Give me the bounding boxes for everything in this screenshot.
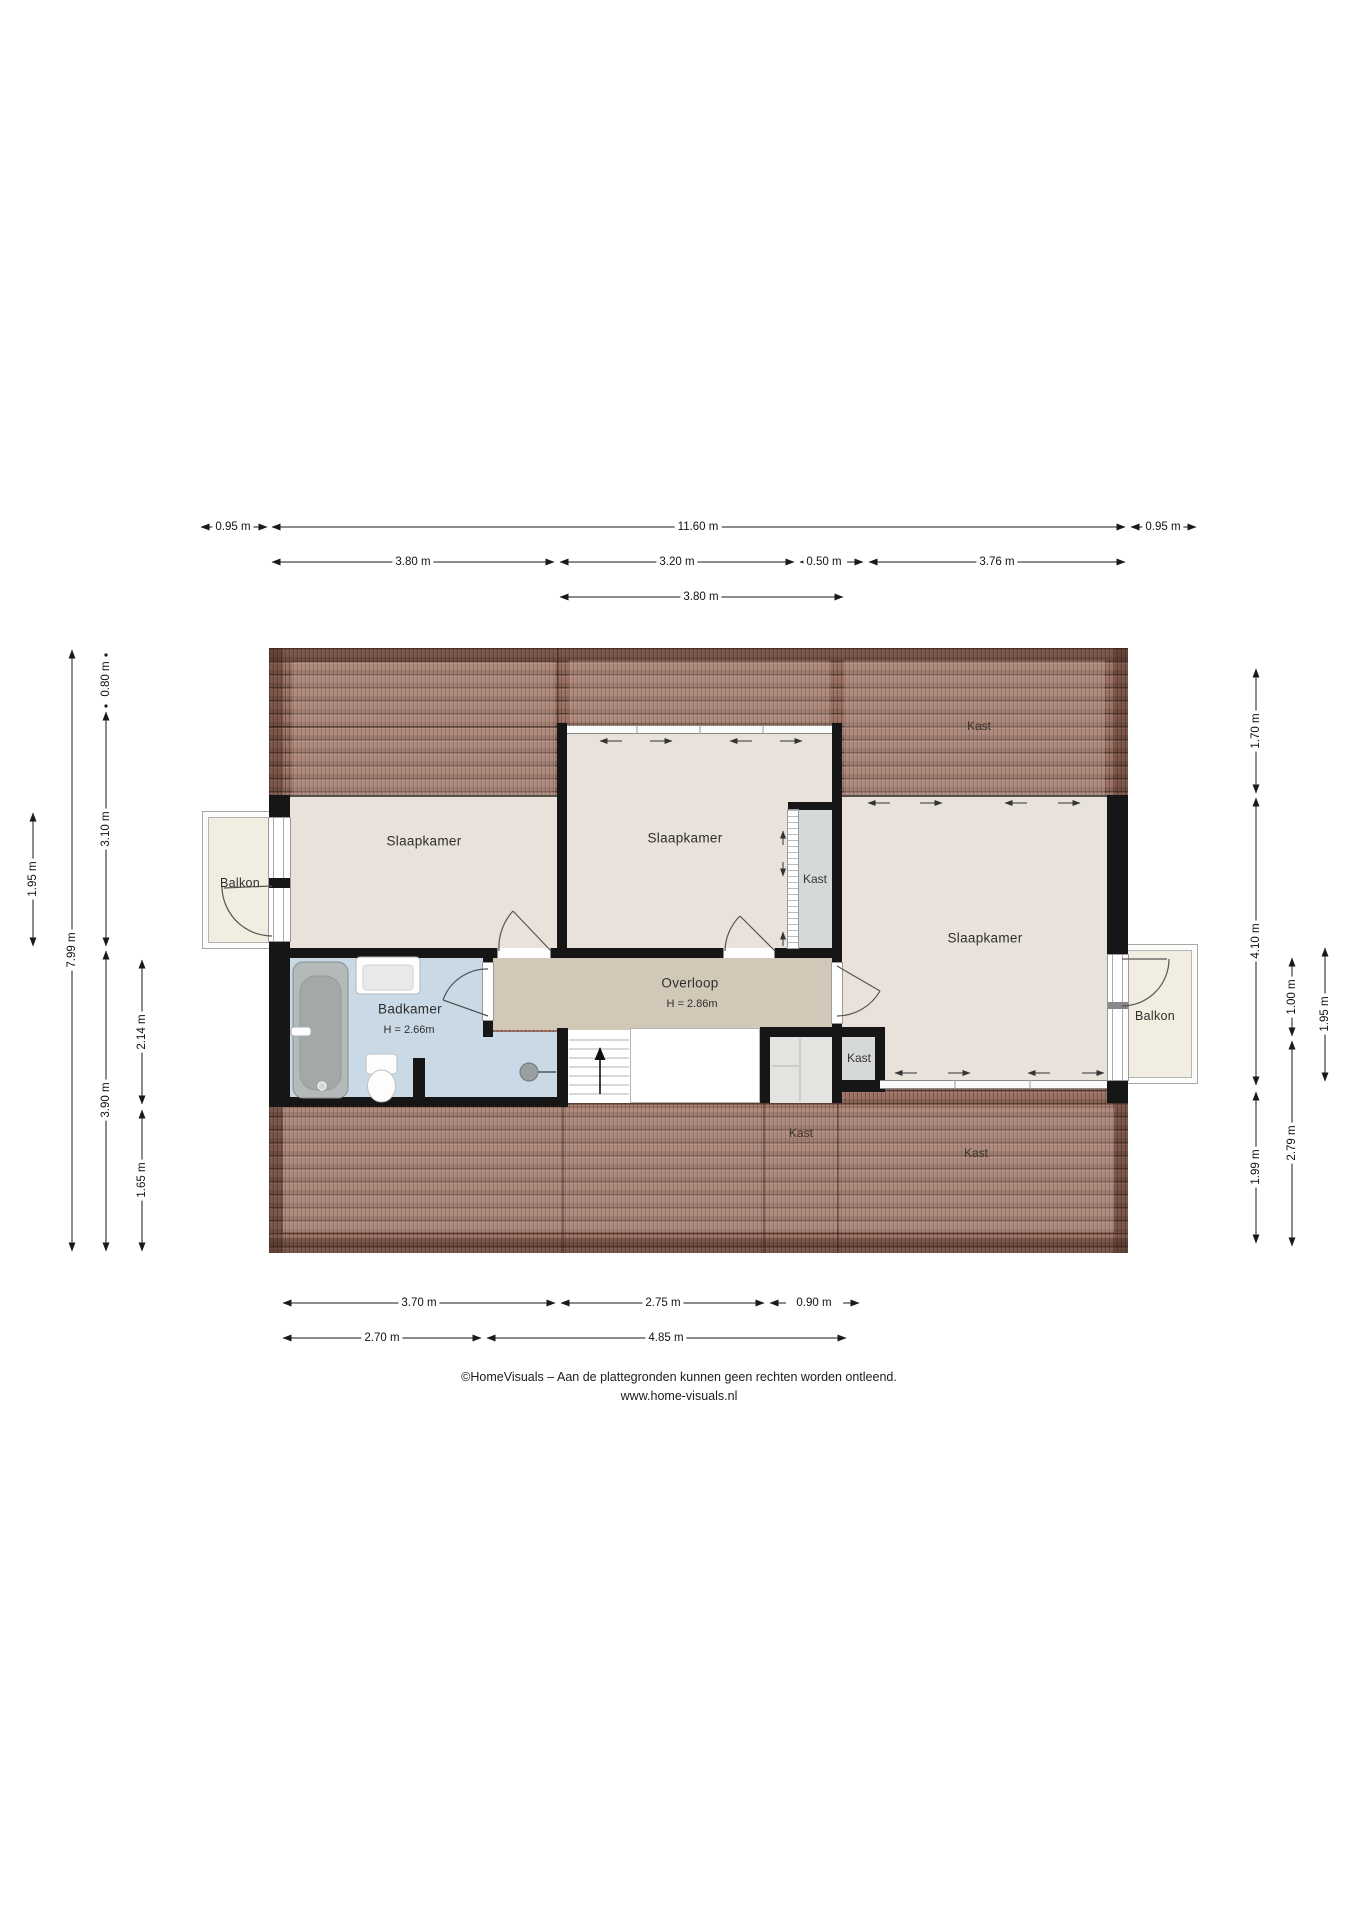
room-label-bedroom-middle: Slaapkamer [647, 831, 722, 846]
dim-right-195: 1.95 m [1319, 993, 1331, 1034]
dim-top-095-left: 0.95 m [212, 521, 253, 533]
dim-left-214: 2.14 m [136, 1011, 148, 1052]
room-label-balcony-left: Balkon [220, 876, 260, 890]
wall [269, 958, 290, 1107]
dim-right-279: 2.79 m [1286, 1122, 1298, 1163]
dim-top-380-left: 3.80 m [392, 556, 433, 568]
door-opening-bedroom-middle [723, 948, 775, 958]
door-opening-bedroom-right [832, 963, 842, 1023]
dim-top-095-right: 0.95 m [1142, 521, 1183, 533]
roof-seam [269, 726, 557, 728]
wall [760, 1027, 885, 1037]
attic-area-bottom [283, 1108, 1114, 1232]
dim-bottom-090: 0.90 m [793, 1297, 834, 1309]
roof-seam [562, 1103, 564, 1253]
attic-area-top-middle [569, 660, 830, 723]
wall [551, 948, 723, 958]
dim-left-080: 0.80 m [100, 658, 112, 699]
room-label-closet-attic-bottom-middle: Kast [789, 1126, 813, 1140]
bedroom-left-floor [290, 795, 557, 948]
dim-right-410: 4.10 m [1250, 920, 1262, 961]
room-label-closet-bedroom: Kast [803, 872, 827, 886]
landing-floor [493, 958, 832, 1030]
dim-left-310: 3.10 m [100, 808, 112, 849]
balcony-right-door-frame [1108, 955, 1128, 1080]
room-label-bathroom: Badkamer [378, 1002, 442, 1017]
wall [832, 723, 842, 963]
dim-bottom-270: 2.70 m [361, 1332, 402, 1344]
frame-tick [1108, 1002, 1128, 1009]
ceiling-height-bathroom: H = 2.66m [383, 1024, 434, 1036]
stairwell-void [630, 1028, 760, 1103]
dim-right-170: 1.70 m [1250, 710, 1262, 751]
ceiling-height-landing: H = 2.86m [666, 998, 717, 1010]
dim-bottom-275: 2.75 m [642, 1297, 683, 1309]
roof-edge-top [269, 648, 1128, 661]
wall [483, 948, 493, 963]
floor-plan-page: Slaapkamer Slaapkamer Slaapkamer Badkame… [0, 0, 1358, 1920]
wall [290, 1097, 568, 1107]
wall [1107, 795, 1128, 955]
dim-left-165: 1.65 m [136, 1159, 148, 1200]
wall [269, 941, 290, 958]
room-label-balcony-right: Balkon [1135, 1009, 1175, 1023]
attic-area-top-left [292, 662, 555, 795]
room-label-bedroom-right: Slaapkamer [947, 931, 1022, 946]
wall [483, 1020, 493, 1037]
dormer-window-band [567, 725, 832, 734]
dim-top-1160: 11.60 m [675, 521, 722, 533]
dim-top-380-mid: 3.80 m [680, 591, 721, 603]
staircase [568, 1030, 630, 1103]
wall [875, 1037, 885, 1080]
dim-bottom-370: 3.70 m [398, 1297, 439, 1309]
wall [1107, 1080, 1128, 1103]
roof-seam [837, 1103, 839, 1253]
dim-left-799: 7.99 m [66, 929, 78, 970]
wall [788, 802, 842, 810]
room-label-landing: Overloop [661, 976, 718, 991]
room-label-closet-landing: Kast [847, 1051, 871, 1065]
bedroom-right-window-band [880, 1080, 1107, 1089]
wall [269, 795, 290, 818]
door-opening-bathroom [483, 963, 493, 1020]
door-hinge-block [269, 878, 290, 888]
room-label-closet-attic-top-right: Kast [967, 719, 991, 733]
room-label-closet-attic-bottom-right: Kast [964, 1146, 988, 1160]
wall [760, 1028, 770, 1103]
dim-right-100: 1.00 m [1286, 976, 1298, 1017]
wall [842, 1080, 885, 1092]
room-label-bedroom-left: Slaapkamer [386, 834, 461, 849]
dim-top-320: 3.20 m [656, 556, 697, 568]
footer-copyright: ©HomeVisuals – Aan de plattegronden kunn… [461, 1370, 897, 1384]
dim-bottom-485: 4.85 m [645, 1332, 686, 1344]
dim-top-376: 3.76 m [976, 556, 1017, 568]
wall [557, 1028, 568, 1107]
wall [290, 948, 497, 958]
dim-top-050: 0.50 m [803, 556, 844, 568]
roof-edge-bottom [269, 1238, 1128, 1253]
closet-sliding-door [788, 810, 798, 948]
dim-left-390: 3.90 m [100, 1079, 112, 1120]
bathroom-floor-extension [483, 1032, 557, 1097]
roof-seam [557, 648, 559, 727]
dim-right-199: 1.99 m [1250, 1146, 1262, 1187]
dim-left-195: 1.95 m [27, 858, 39, 899]
footer-website: www.home-visuals.nl [621, 1389, 738, 1403]
roof-seam [763, 1103, 765, 1253]
wall [557, 723, 567, 958]
door-opening-bedroom-left [497, 948, 551, 958]
